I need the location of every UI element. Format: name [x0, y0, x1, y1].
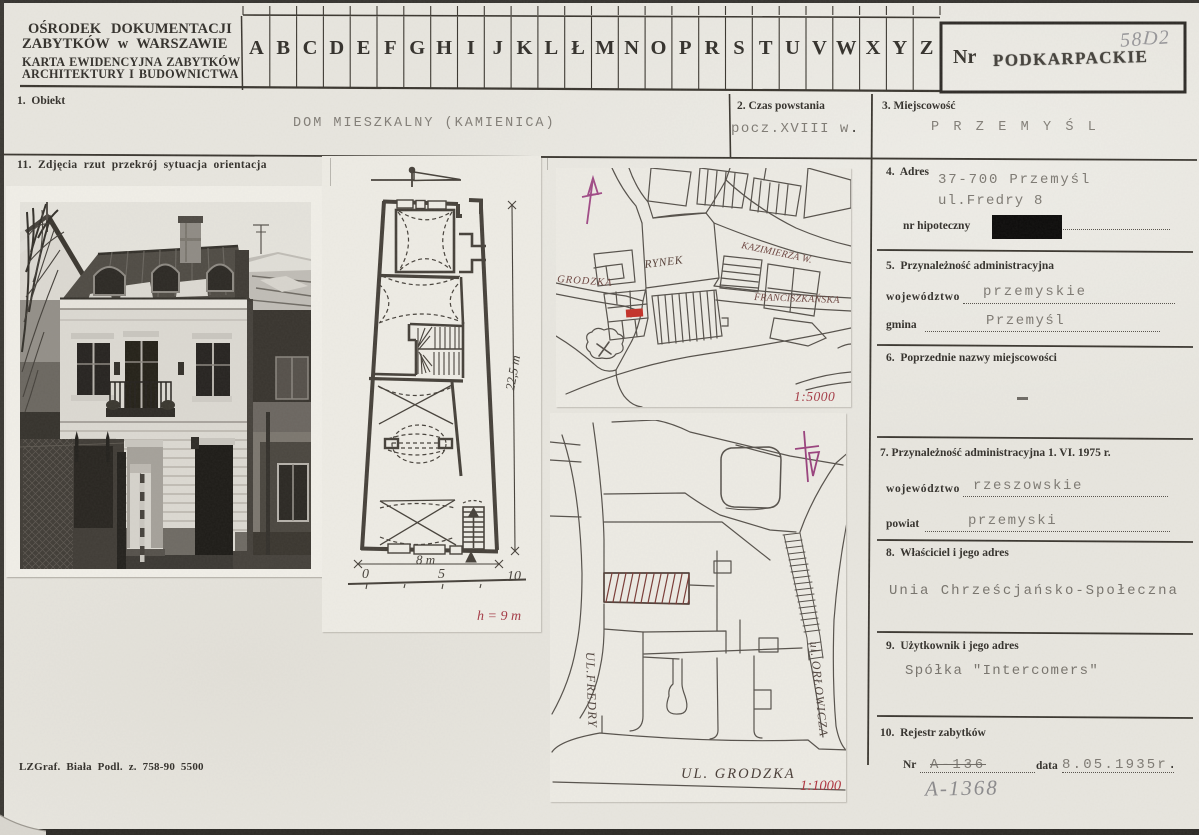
- svg-text:h = 9 m: h = 9 m: [477, 609, 521, 624]
- svg-text:22,5 m: 22,5 m: [502, 354, 523, 391]
- svg-text:GRODZKA: GRODZKA: [557, 274, 613, 289]
- svg-text:KAZIMIERZA W.: KAZIMIERZA W.: [739, 240, 813, 266]
- svg-text:8 m: 8 m: [416, 552, 435, 567]
- svg-text:UL. GRODZKA: UL. GRODZKA: [681, 766, 796, 782]
- svg-text:FRANCISZKAŃSKA: FRANCISZKAŃSKA: [753, 291, 841, 306]
- svg-text:ul. ORŁOWICZA: ul. ORŁOWICZA: [807, 641, 831, 738]
- svg-text:5: 5: [438, 567, 445, 582]
- svg-text:RYNEK: RYNEK: [643, 254, 684, 271]
- svg-text:UL.FREDRY: UL.FREDRY: [583, 652, 600, 729]
- svg-text:1:1000: 1:1000: [800, 778, 842, 794]
- svg-text:1:5000: 1:5000: [794, 389, 835, 404]
- svg-text:10: 10: [507, 569, 521, 584]
- svg-text:0: 0: [362, 567, 369, 582]
